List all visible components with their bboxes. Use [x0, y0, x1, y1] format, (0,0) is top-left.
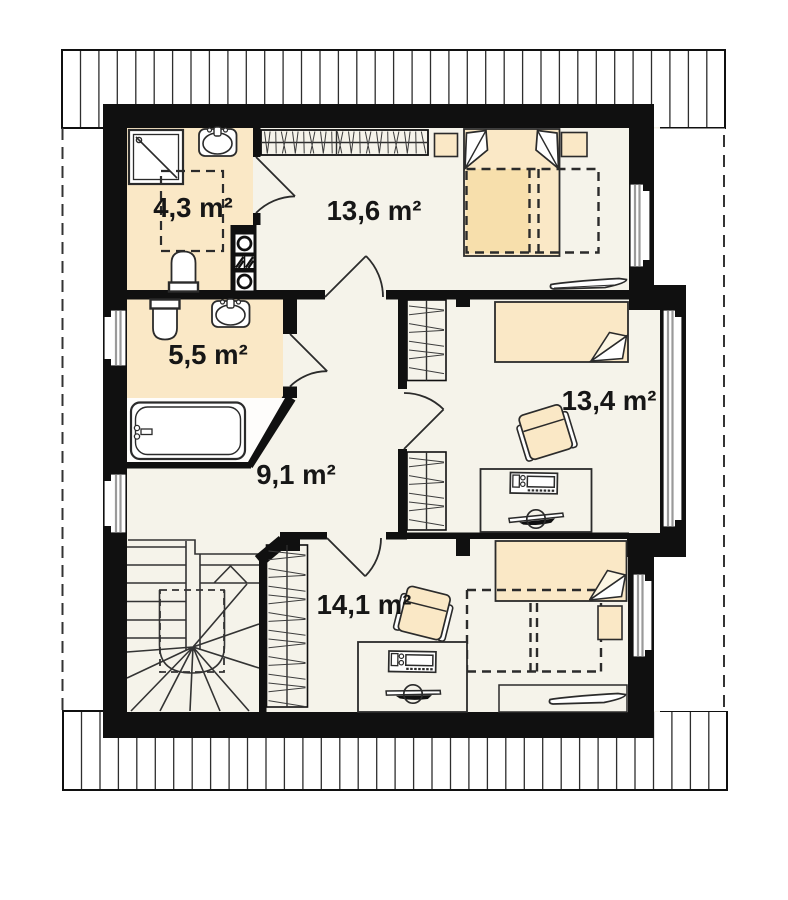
svg-text:5,5 m²: 5,5 m²: [168, 339, 247, 370]
svg-text:4,3 m²: 4,3 m²: [153, 192, 232, 223]
svg-text:9,1 m²: 9,1 m²: [256, 459, 335, 490]
svg-text:13,6 m²: 13,6 m²: [327, 195, 422, 226]
svg-text:14,1 m²: 14,1 m²: [317, 589, 412, 620]
svg-text:13,4 m²: 13,4 m²: [562, 385, 657, 416]
